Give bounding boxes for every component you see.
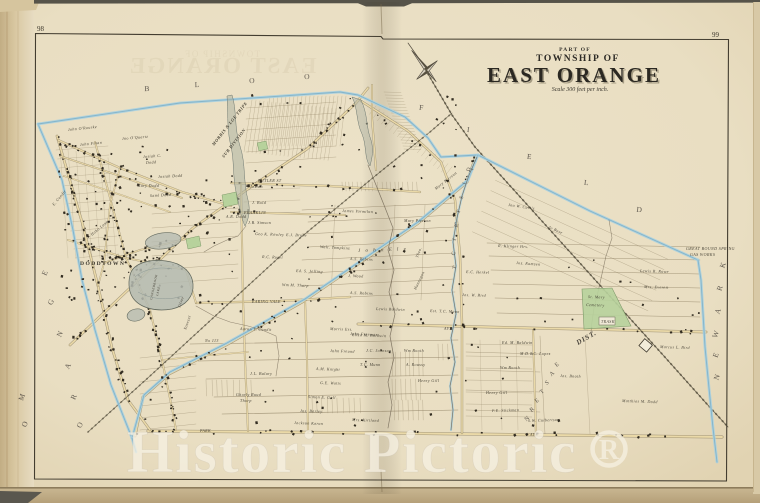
svg-text:John Freund: John Freund [330, 348, 356, 354]
svg-text:Jos. Barley: Jos. Barley [300, 408, 323, 414]
svg-text:J.L. Balary: J.L. Balary [250, 371, 272, 376]
svg-text:B: B [144, 84, 149, 93]
svg-text:Jas. W. Bird: Jas. W. Bird [462, 292, 487, 298]
svg-text:E.J. Bruce: E.J. Bruce [285, 232, 307, 238]
svg-text:BUTLER ST: BUTLER ST [258, 178, 282, 183]
svg-text:Ed. S. Jelling: Ed. S. Jelling [295, 268, 323, 274]
svg-text:J. Bold: J. Bold [252, 200, 267, 205]
svg-text:FRANKLIN: FRANKLIN [243, 210, 266, 215]
svg-text:T.C. Munn: T.C. Munn [360, 362, 381, 367]
svg-text:R.C. Ruset: R.C. Ruset [261, 254, 284, 260]
svg-text:A. Roussy: A. Roussy [405, 362, 425, 367]
svg-text:Ed. M. Baldwin: Ed. M. Baldwin [501, 340, 533, 345]
svg-text:GREAT BOUND SPRING: GREAT BOUND SPRING [686, 246, 735, 251]
svg-text:TOWNSHIP OF: TOWNSHIP OF [184, 49, 260, 59]
svg-text:J. Wood: J. Wood [348, 273, 364, 279]
svg-text:Lewis Baldwin: Lewis Baldwin [375, 306, 405, 312]
svg-text:Cemetery: Cemetery [586, 302, 605, 308]
svg-text:Ghorly Ruud: Ghorly Ruud [236, 392, 262, 397]
svg-text:Henry Gill: Henry Gill [485, 390, 508, 395]
svg-text:A.S. Robins: A.S. Robins [349, 290, 373, 296]
svg-text:DODDTOWN: DODDTOWN [80, 261, 125, 267]
svg-text:Thorp: Thorp [240, 398, 252, 403]
svg-text:Mrs. Everett: Mrs. Everett [643, 284, 669, 290]
svg-text:Jas. Booth: Jas. Booth [560, 373, 581, 379]
svg-text:No 113: No 113 [204, 338, 219, 343]
svg-text:Simon E. Gall: Simon E. Gall [308, 394, 336, 400]
svg-text:St. Mary: St. Mary [588, 294, 605, 300]
svg-text:Mary Dodd: Mary Dodd [136, 183, 160, 188]
svg-text:A.M. Knight: A.M. Knight [315, 366, 341, 372]
svg-text:Henry Gill: Henry Gill [417, 378, 440, 383]
svg-text:Scale 300 feet per inch.: Scale 300 feet per inch. [552, 86, 608, 93]
svg-text:EARING VALE: EARING VALE [251, 299, 281, 304]
svg-text:Josiah: Josiah [250, 184, 263, 189]
svg-text:AVE: AVE [443, 326, 452, 331]
svg-text:J.B. Simson: J.B. Simson [248, 220, 271, 225]
svg-text:Wm M. Thorp: Wm M. Thorp [282, 282, 309, 288]
svg-text:M.D.&C. Lopez: M.D.&C. Lopez [519, 351, 551, 356]
svg-text:EAST ORANGE: EAST ORANGE [487, 63, 661, 87]
svg-text:A.S. Robins: A.S. Robins [349, 256, 373, 262]
svg-text:Wm Booth: Wm Booth [404, 348, 424, 353]
svg-text:99: 99 [712, 31, 720, 39]
svg-text:Lewis R. Rowe: Lewis R. Rowe [639, 268, 669, 274]
svg-text:G.E. Watts: G.E. Watts [320, 380, 341, 386]
svg-text:O: O [249, 76, 255, 85]
svg-text:PART OF: PART OF [559, 47, 591, 53]
svg-text:Wm Booth: Wm Booth [500, 365, 520, 370]
svg-text:Est. T.C. Mann: Est. T.C. Mann [429, 308, 460, 314]
svg-text:Dodd: Dodd [145, 159, 157, 165]
svg-text:98: 98 [37, 25, 45, 33]
svg-text:J.C. Johnson: J.C. Johnson [366, 348, 392, 353]
svg-text:GAS WORKS: GAS WORKS [690, 252, 715, 257]
svg-text:E.C. Herkel: E.C. Herkel [465, 269, 490, 275]
svg-text:TRASK: TRASK [601, 319, 615, 324]
svg-text:Historic Pictoric: Historic Pictoric [127, 419, 577, 485]
svg-text:Mary Pierson: Mary Pierson [403, 218, 431, 223]
svg-text:R: R [599, 435, 620, 466]
svg-text:L: L [194, 80, 199, 89]
svg-text:P.E. Stickman: P.E. Stickman [491, 407, 519, 413]
svg-text:Geo K. Rawley: Geo K. Rawley [255, 231, 284, 237]
svg-text:O: O [304, 72, 310, 81]
